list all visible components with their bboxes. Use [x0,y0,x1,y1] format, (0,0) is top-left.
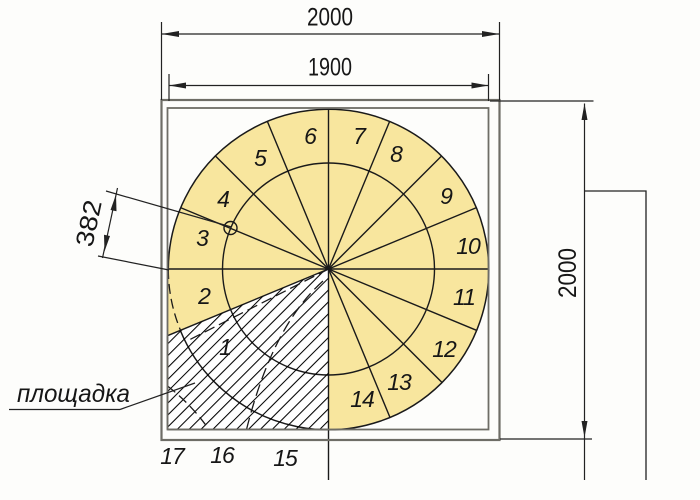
svg-text:16: 16 [210,442,235,468]
svg-text:17: 17 [160,443,186,469]
svg-text:12: 12 [432,336,457,362]
svg-text:6: 6 [304,123,317,149]
svg-text:11: 11 [453,284,475,310]
svg-text:1: 1 [219,334,231,360]
svg-text:2000: 2000 [554,248,582,298]
svg-text:13: 13 [387,369,412,395]
svg-text:10: 10 [456,233,481,259]
svg-text:8: 8 [390,141,403,167]
svg-text:4: 4 [217,186,229,212]
svg-text:3: 3 [196,225,209,251]
svg-text:14: 14 [350,386,374,412]
svg-text:9: 9 [440,183,453,209]
svg-text:площадка: площадка [17,380,130,408]
svg-text:15: 15 [273,445,298,471]
svg-text:5: 5 [254,145,267,171]
svg-text:2000: 2000 [307,4,353,32]
svg-text:1900: 1900 [308,54,352,82]
svg-text:2: 2 [197,283,211,309]
